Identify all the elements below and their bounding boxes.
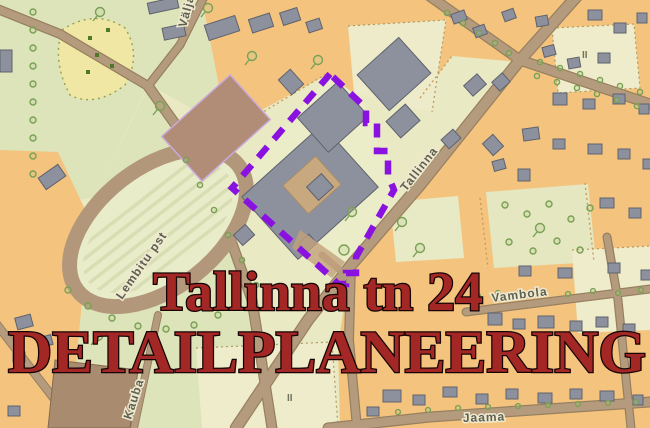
map-canvas: Välja Tallinna Lembitu pst Kauba Vambola… [0,0,650,428]
building [643,159,650,169]
building [567,57,581,69]
title-line2: DETAILPLANEERING [8,319,646,385]
building [588,10,602,20]
building [553,139,565,149]
building [413,395,425,405]
building [598,53,610,63]
building [519,266,531,276]
building [639,104,649,114]
building [506,389,518,399]
building [8,406,20,416]
building [570,389,582,399]
building [518,169,530,181]
building [522,127,540,141]
building [641,270,650,280]
building [367,407,379,416]
building [614,23,626,33]
building [553,93,567,105]
building [558,268,572,278]
building [538,393,552,403]
building [583,99,595,109]
building [535,15,549,27]
building [608,263,620,273]
storey-marker: II [287,393,293,404]
building [629,208,641,218]
storey-marker: II [582,50,588,61]
planning-map-image: Välja Tallinna Lembitu pst Kauba Vambola… [0,0,650,428]
title-line1: Tallinna tn 24 [153,261,483,322]
street-label-jaama: Jaama [463,410,506,425]
building [476,394,488,404]
building [0,50,12,72]
building [618,149,630,159]
building [443,387,457,397]
building [600,391,614,401]
building [588,144,602,154]
building [600,198,614,208]
building [637,13,647,23]
building [383,390,401,402]
